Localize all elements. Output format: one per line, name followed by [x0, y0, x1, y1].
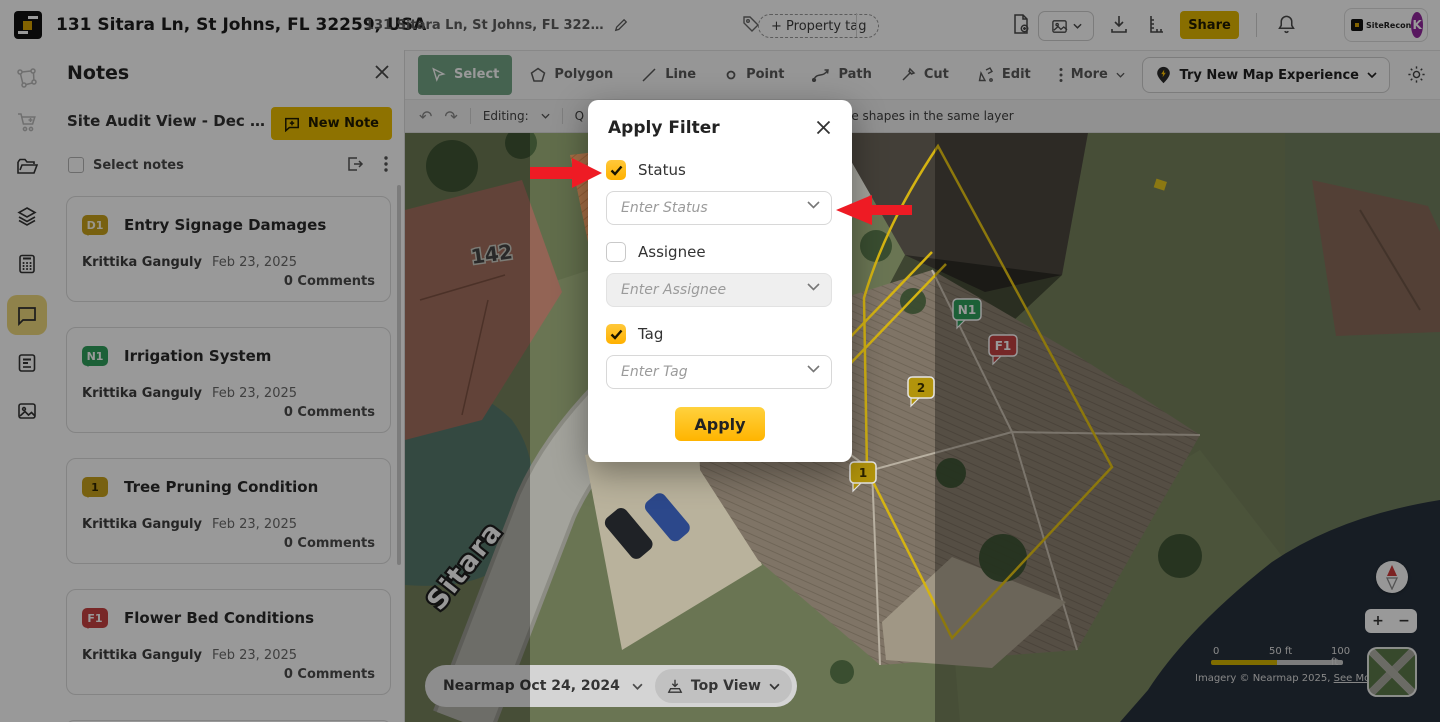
- undo-icon[interactable]: ↶: [419, 107, 432, 126]
- sidebar-item-projects[interactable]: [7, 147, 47, 187]
- note-badge: 1: [82, 477, 108, 497]
- app-root: 131 Sitara Ln, St Johns, FL 32259, USA 1…: [0, 0, 1440, 722]
- editing-text-fragment: le shapes in the same layer: [848, 109, 1014, 123]
- editing-option-fragment: Q: [575, 109, 584, 123]
- chevron-down-icon: [1073, 23, 1082, 29]
- status-placeholder: Enter Status: [621, 192, 708, 224]
- note-comments[interactable]: 0 Comments: [284, 274, 375, 289]
- notes-scrollbar[interactable]: [397, 185, 401, 565]
- tool-path[interactable]: Path: [798, 55, 885, 95]
- editing-label: Editing:: [483, 109, 529, 123]
- close-notes-icon[interactable]: [374, 64, 390, 80]
- assignee-placeholder: Enter Assignee: [621, 274, 726, 306]
- sidebar-item-boundary[interactable]: [7, 58, 47, 98]
- apply-filter-modal: Apply Filter Status Enter Status Assigne…: [588, 100, 852, 462]
- tool-edit[interactable]: Edit: [963, 55, 1045, 95]
- svg-text:1: 1: [859, 466, 867, 480]
- tag-placeholder: Enter Tag: [621, 356, 688, 388]
- scale-end: 100 ft: [1331, 646, 1351, 668]
- map-toolbar: Select Polygon Line Point Path Cut: [405, 50, 1440, 100]
- scale-start: 0: [1213, 646, 1219, 657]
- annotation-arrow-status: [530, 157, 602, 189]
- sidebar-item-cart[interactable]: [7, 102, 47, 142]
- tool-line[interactable]: Line: [627, 55, 710, 95]
- modal-checkbox-assignee[interactable]: [606, 242, 626, 262]
- map-area: Select Polygon Line Point Path Cut: [405, 50, 1440, 722]
- user-avatar[interactable]: K: [1411, 12, 1423, 38]
- note-comments[interactable]: 0 Comments: [284, 667, 375, 682]
- edit-shape-icon: [977, 67, 994, 83]
- assignee-dropdown[interactable]: Enter Assignee: [606, 273, 832, 307]
- measure-icon[interactable]: [1145, 13, 1167, 35]
- try-new-map-button[interactable]: Try New Map Experience: [1142, 57, 1390, 93]
- top-view-icon: [667, 678, 683, 694]
- download-icon[interactable]: [1108, 13, 1130, 35]
- polygon-icon: [530, 67, 546, 83]
- chevron-down-icon: [769, 683, 780, 690]
- sidebar-item-reports[interactable]: [7, 343, 47, 383]
- chevron-down-icon: [1116, 72, 1125, 78]
- notes-panel-title: Notes: [67, 62, 129, 84]
- tool-more[interactable]: More: [1045, 55, 1139, 95]
- minimap-thumbnail[interactable]: [1367, 647, 1417, 697]
- screenshot-menu-button[interactable]: [1038, 11, 1094, 41]
- compass-control[interactable]: [1376, 561, 1408, 593]
- line-icon: [641, 67, 657, 83]
- map-pin-bolt-icon: [1155, 66, 1172, 84]
- modal-checkbox-tag[interactable]: [606, 324, 626, 344]
- map-canvas[interactable]: 142 Sitara N1 F1 2: [405, 133, 1440, 722]
- path-icon: [812, 67, 830, 82]
- note-author: Krittika Ganguly: [82, 648, 202, 663]
- note-card[interactable]: 1 Tree Pruning Condition Krittika Gangul…: [66, 458, 391, 564]
- tag-filter-row: Tag: [606, 324, 663, 344]
- note-date: Feb 23, 2025: [212, 386, 297, 401]
- zoom-control: + −: [1365, 609, 1417, 633]
- note-title: Flower Bed Conditions: [124, 609, 314, 627]
- sidebar-item-photos[interactable]: [7, 391, 47, 431]
- note-date: Feb 23, 2025: [212, 517, 297, 532]
- status-filter-row: Status: [606, 160, 686, 180]
- chevron-down-icon: [807, 283, 820, 291]
- property-address-secondary: 131 Sitara Ln, St Johns, FL 322…: [365, 18, 604, 33]
- chevron-down-icon: [1367, 72, 1377, 78]
- chevron-down-icon: [807, 201, 820, 209]
- note-card[interactable]: F1 Flower Bed Conditions Krittika Gangul…: [66, 589, 391, 695]
- note-badge: D1: [82, 215, 108, 235]
- toolbar-divider: [562, 108, 563, 124]
- note-badge: F1: [82, 608, 108, 628]
- note-comments[interactable]: 0 Comments: [284, 536, 375, 551]
- status-label: Status: [638, 161, 686, 179]
- notifications-bell-icon[interactable]: [1276, 13, 1297, 35]
- account-menu[interactable]: SiteRecon K: [1344, 8, 1428, 42]
- point-icon: [724, 68, 738, 82]
- imagery-date-selector[interactable]: Nearmap Oct 24, 2024: [443, 678, 620, 694]
- status-dropdown[interactable]: Enter Status: [606, 191, 832, 225]
- cut-icon: [900, 67, 916, 83]
- select-notes-row[interactable]: Select notes: [68, 157, 184, 173]
- imagery-date-bar: Nearmap Oct 24, 2024 Top View: [425, 665, 797, 707]
- toolbar-divider: [470, 108, 471, 124]
- note-author: Krittika Ganguly: [82, 517, 202, 532]
- zoom-out-button[interactable]: −: [1398, 613, 1410, 629]
- view-name-label[interactable]: Site Audit View - Dec …: [67, 112, 265, 130]
- left-icon-rail: [0, 50, 56, 722]
- notes-card-list: D1 Entry Signage Damages Krittika Gangul…: [66, 196, 391, 722]
- header-divider: [856, 13, 857, 37]
- zoom-in-button[interactable]: +: [1372, 613, 1384, 629]
- note-title: Irrigation System: [124, 347, 271, 365]
- sidebar-item-notes[interactable]: [7, 295, 47, 335]
- editing-toolbar: ↶ ↷ Editing: Q le shapes in the same lay…: [405, 100, 1440, 133]
- scale-mid: 50 ft: [1269, 646, 1292, 657]
- note-author: Krittika Ganguly: [82, 386, 202, 401]
- note-date: Feb 23, 2025: [212, 255, 297, 270]
- tool-select[interactable]: Select: [418, 55, 512, 95]
- note-title: Tree Pruning Condition: [124, 478, 318, 496]
- apply-button[interactable]: Apply: [675, 407, 765, 441]
- siterecon-wordmark: SiteRecon: [1351, 19, 1411, 31]
- notes-more-menu-icon[interactable]: [384, 155, 388, 173]
- chevron-down-icon: [807, 365, 820, 373]
- svg-text:2: 2: [917, 381, 925, 395]
- export-notes-icon[interactable]: [346, 155, 364, 173]
- map-scale: 0 50 ft 100 ft: [1211, 646, 1351, 665]
- note-card[interactable]: N1 Irrigation System Krittika Ganguly Fe…: [66, 327, 391, 433]
- siterecon-logo-icon[interactable]: [14, 11, 42, 39]
- imagery-attribution: Imagery © Nearmap 2025, See More: [1195, 673, 1380, 684]
- add-document-icon[interactable]: [1010, 13, 1032, 35]
- new-note-button[interactable]: New Note: [271, 107, 392, 140]
- note-card[interactable]: D1 Entry Signage Damages Krittika Gangul…: [66, 196, 391, 302]
- assignee-filter-row: Assignee: [606, 242, 706, 262]
- svg-text:F1: F1: [995, 339, 1012, 353]
- kebab-icon: [1059, 67, 1063, 83]
- select-notes-label: Select notes: [93, 158, 184, 173]
- tag-label: Tag: [638, 325, 663, 343]
- note-author: Krittika Ganguly: [82, 255, 202, 270]
- note-badge: N1: [82, 346, 108, 366]
- note-plus-icon: [284, 116, 300, 132]
- close-modal-icon[interactable]: [816, 120, 831, 135]
- sidebar-item-layers[interactable]: [7, 196, 47, 236]
- add-property-tag-button[interactable]: + Property tag: [758, 14, 879, 38]
- map-settings-gear-icon[interactable]: [1406, 64, 1427, 85]
- chevron-down-icon: [632, 683, 643, 690]
- top-header: 131 Sitara Ln, St Johns, FL 32259, USA 1…: [0, 0, 1440, 51]
- sidebar-item-takeoff[interactable]: [7, 244, 47, 284]
- redo-icon[interactable]: ↷: [444, 107, 457, 126]
- notes-panel: Notes Site Audit View - Dec … New Note S…: [55, 50, 405, 722]
- note-date: Feb 23, 2025: [212, 648, 297, 663]
- chevron-down-icon: [541, 113, 550, 119]
- svg-text:N1: N1: [958, 303, 976, 317]
- note-comments[interactable]: 0 Comments: [284, 405, 375, 420]
- view-mode-selector[interactable]: Top View: [655, 669, 792, 703]
- modal-title: Apply Filter: [608, 118, 720, 138]
- tool-cut[interactable]: Cut: [886, 55, 963, 95]
- annotation-arrow-status-dropdown: [836, 195, 912, 225]
- tag-dropdown[interactable]: Enter Tag: [606, 355, 832, 389]
- assignee-label: Assignee: [638, 243, 706, 261]
- tool-polygon[interactable]: Polygon: [516, 55, 627, 95]
- tool-point[interactable]: Point: [710, 55, 798, 95]
- note-title: Entry Signage Damages: [124, 216, 326, 234]
- cursor-icon: [431, 67, 446, 82]
- modal-checkbox-status[interactable]: [606, 160, 626, 180]
- edit-address-icon[interactable]: [614, 18, 628, 32]
- select-notes-checkbox[interactable]: [68, 157, 84, 173]
- share-button[interactable]: Share: [1180, 11, 1239, 39]
- header-divider: [1256, 13, 1257, 37]
